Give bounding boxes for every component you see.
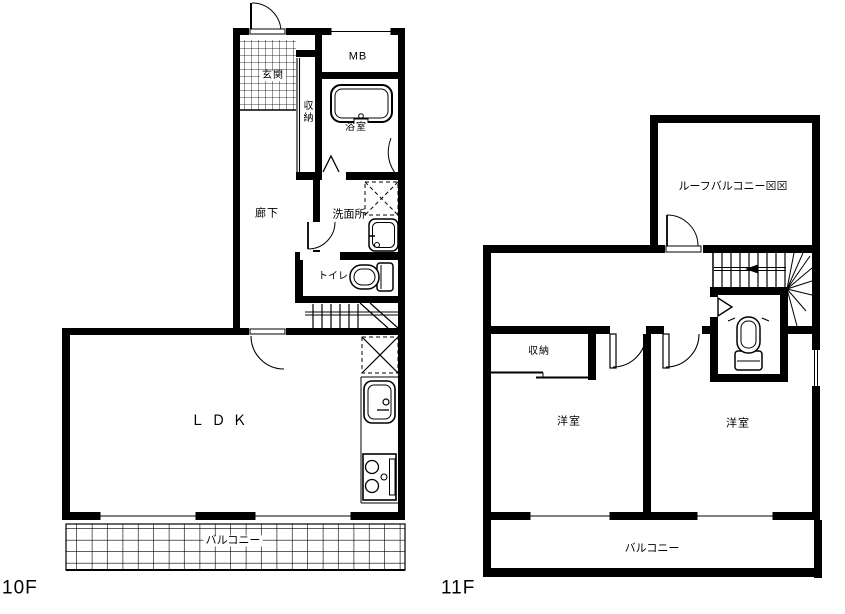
room-label-mb: MB [349, 52, 368, 63]
bathtub-icon [331, 85, 392, 127]
room-label-balcony-10f: バルコニー [204, 536, 263, 547]
bath-folding-door-icon [323, 156, 339, 172]
room-label-ldk: ＬＤＫ [191, 413, 254, 427]
stairs-10f [305, 303, 398, 328]
entry-door-icon [250, 3, 285, 34]
kitchen-sink-icon [364, 381, 395, 423]
washbasin-icon [369, 219, 398, 251]
floor-plan-canvas: 玄関 MB 浴室 収納 廊下 洗面所 トイレ ＬＤＫ バルコニー 10F ルーフ… [0, 0, 845, 614]
western-room-left-door-icon [610, 334, 646, 368]
room-label-closet-10f: 収納 [301, 100, 311, 124]
stove-icon [363, 454, 396, 500]
floor-label-11f: 11F [441, 579, 475, 598]
room-label-roof-balcony: ルーフバルコニー⊠⊠ [678, 182, 787, 193]
room-label-western-room-right: 洋室 [726, 419, 750, 430]
washing-machine-symbol [365, 182, 398, 215]
toilet-icon-10f [350, 263, 393, 291]
room-label-genkan: 玄関 [260, 71, 286, 81]
room-label-toilet: トイレ [318, 272, 348, 282]
kitchen-counter-line [361, 377, 398, 503]
washroom-door-icon [308, 222, 335, 249]
room-label-hallway: 廊下 [255, 209, 279, 220]
room-label-washroom: 洗面所 [333, 210, 366, 221]
wall-openings [100, 28, 820, 520]
room-label-bathroom: 浴室 [343, 123, 369, 133]
plan-linework [0, 0, 845, 614]
floor-label-10f: 10F [2, 579, 38, 598]
bath-detail-arc [388, 138, 398, 177]
room-label-western-room-left: 洋室 [557, 417, 581, 428]
closet-sliding-door-11f [491, 373, 588, 378]
western-room-right-door-icon [663, 334, 699, 368]
room-label-closet-11f: 収納 [528, 347, 550, 357]
balcony-lattice-10f [66, 524, 405, 570]
refrigerator-symbol [362, 337, 398, 373]
closet-front-line-10f [297, 58, 300, 172]
room-label-balcony-11f: バルコニー [625, 544, 680, 555]
roof-balcony-door-icon [666, 215, 701, 252]
